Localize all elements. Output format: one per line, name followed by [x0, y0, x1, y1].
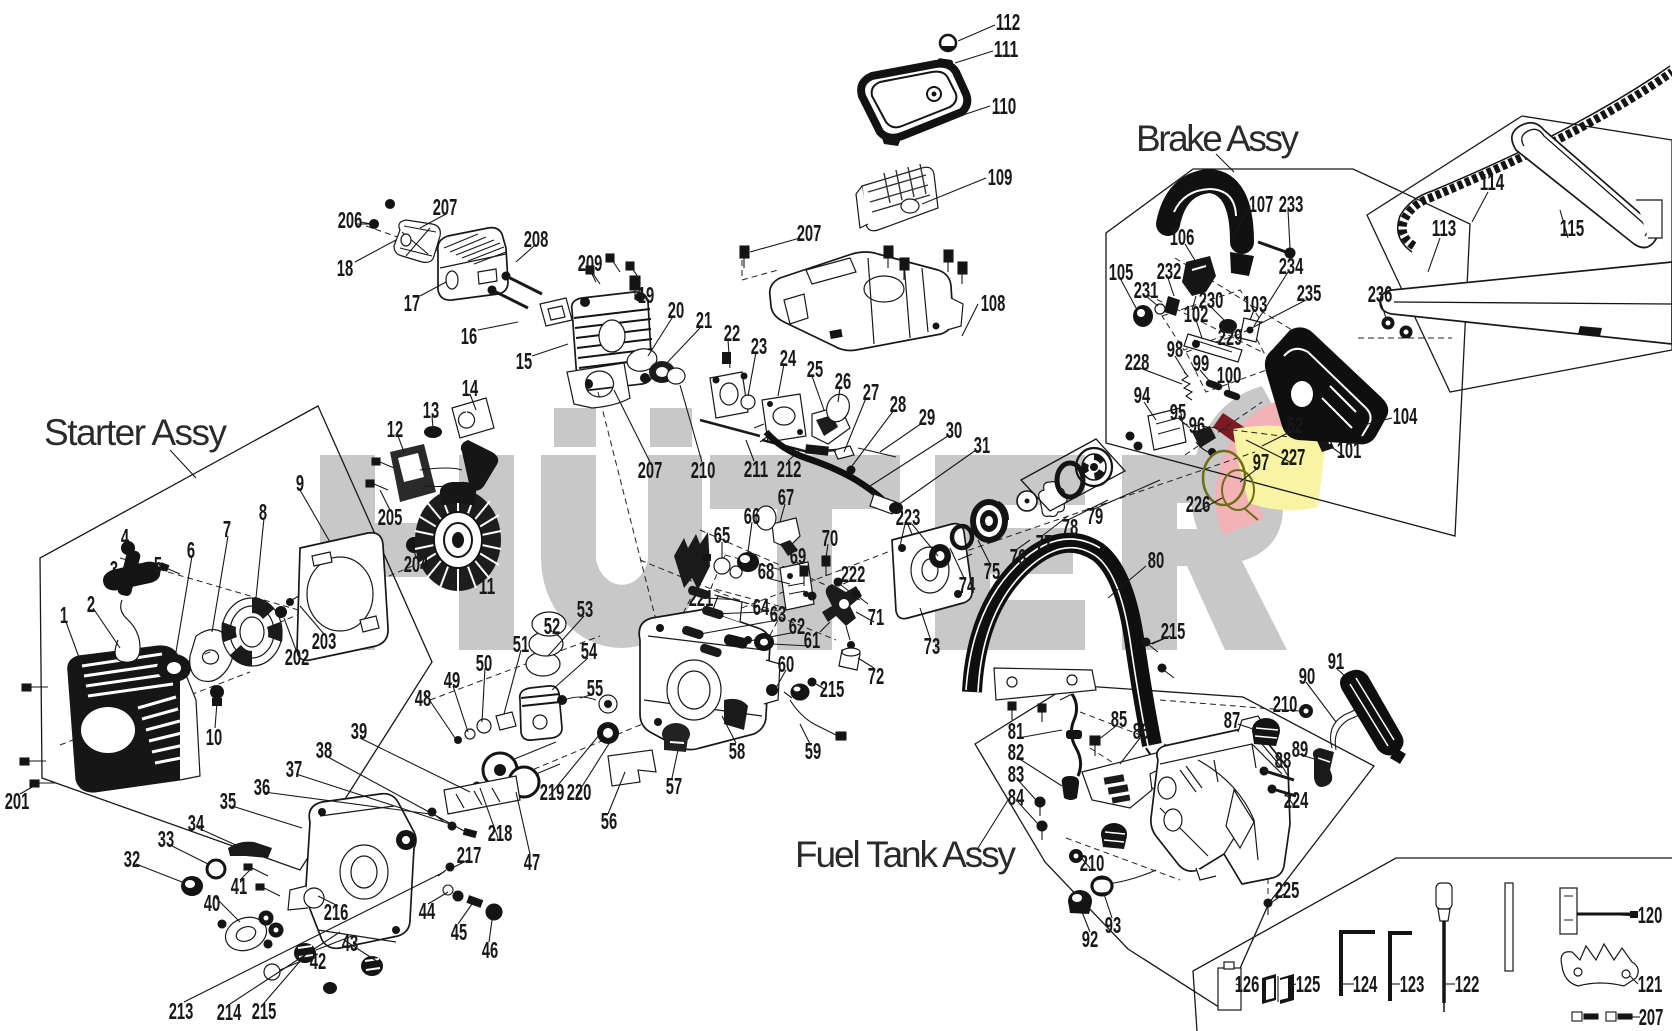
- svg-text:105: 105: [1109, 259, 1134, 285]
- svg-text:80: 80: [1148, 547, 1164, 573]
- svg-text:53: 53: [577, 596, 593, 622]
- svg-text:52: 52: [544, 613, 560, 639]
- svg-text:217: 217: [457, 842, 482, 868]
- svg-text:223: 223: [896, 504, 921, 530]
- svg-text:216: 216: [324, 899, 349, 925]
- svg-text:207: 207: [1639, 1004, 1664, 1030]
- svg-text:106: 106: [1170, 224, 1195, 250]
- svg-text:55: 55: [587, 675, 604, 701]
- svg-text:222: 222: [841, 561, 866, 587]
- svg-text:232: 232: [1157, 258, 1182, 284]
- svg-text:226: 226: [1186, 491, 1211, 517]
- svg-text:Fuel Tank Assy: Fuel Tank Assy: [795, 834, 1017, 875]
- svg-text:5: 5: [154, 552, 162, 578]
- svg-text:62: 62: [789, 613, 805, 639]
- svg-text:38: 38: [316, 737, 333, 763]
- svg-text:65: 65: [714, 522, 731, 548]
- svg-text:235: 235: [1297, 280, 1322, 306]
- svg-text:236: 236: [1368, 281, 1393, 307]
- svg-text:1: 1: [60, 602, 68, 628]
- svg-text:210: 210: [691, 457, 716, 483]
- svg-text:Brake Assy: Brake Assy: [1136, 118, 1300, 159]
- svg-text:102: 102: [1184, 301, 1209, 327]
- svg-text:17: 17: [404, 290, 420, 316]
- svg-text:7: 7: [223, 516, 231, 542]
- svg-text:95: 95: [1170, 399, 1187, 425]
- svg-text:210: 210: [1080, 850, 1105, 876]
- svg-text:234: 234: [1279, 253, 1304, 279]
- svg-text:115: 115: [1560, 215, 1585, 241]
- svg-text:49: 49: [444, 667, 460, 693]
- svg-text:24: 24: [780, 345, 797, 371]
- svg-text:34: 34: [188, 810, 205, 836]
- svg-text:219: 219: [540, 779, 565, 805]
- svg-text:33: 33: [158, 826, 174, 852]
- svg-text:207: 207: [797, 220, 822, 246]
- svg-text:207: 207: [638, 457, 663, 483]
- svg-text:221: 221: [689, 585, 714, 611]
- svg-text:86: 86: [1133, 718, 1149, 744]
- svg-text:71: 71: [868, 604, 885, 630]
- svg-text:208: 208: [524, 226, 549, 252]
- svg-text:68: 68: [758, 558, 775, 584]
- svg-text:97: 97: [1253, 449, 1269, 475]
- svg-text:31: 31: [974, 432, 991, 458]
- svg-text:113: 113: [1432, 215, 1457, 241]
- svg-text:206: 206: [338, 207, 363, 233]
- svg-text:50: 50: [476, 650, 492, 676]
- svg-text:94: 94: [1134, 382, 1151, 408]
- svg-text:57: 57: [666, 773, 682, 799]
- svg-text:69: 69: [790, 543, 806, 569]
- svg-text:70: 70: [822, 525, 838, 551]
- svg-text:16: 16: [461, 323, 477, 349]
- svg-text:104: 104: [1393, 403, 1418, 429]
- svg-text:211: 211: [744, 456, 769, 482]
- svg-text:215: 215: [1161, 618, 1186, 644]
- svg-text:37: 37: [286, 756, 302, 782]
- svg-text:15: 15: [516, 348, 533, 374]
- svg-text:3: 3: [110, 556, 118, 582]
- svg-text:103: 103: [1243, 291, 1268, 317]
- svg-text:59: 59: [805, 738, 821, 764]
- svg-text:27: 27: [863, 379, 879, 405]
- svg-text:10: 10: [206, 724, 222, 750]
- svg-text:Starter Assy: Starter Assy: [44, 412, 228, 453]
- svg-text:91: 91: [1328, 648, 1345, 674]
- svg-text:79: 79: [1087, 503, 1103, 529]
- svg-text:224: 224: [1284, 787, 1309, 813]
- svg-text:28: 28: [890, 391, 907, 417]
- svg-text:121: 121: [1638, 971, 1663, 997]
- svg-text:227: 227: [1281, 444, 1306, 470]
- svg-text:93: 93: [1105, 912, 1121, 938]
- svg-text:29: 29: [919, 404, 935, 430]
- svg-text:32: 32: [124, 846, 140, 872]
- svg-text:107: 107: [1249, 191, 1274, 217]
- svg-text:88: 88: [1275, 747, 1292, 773]
- svg-text:204: 204: [404, 551, 429, 577]
- svg-text:61: 61: [804, 627, 821, 653]
- svg-text:76: 76: [1010, 544, 1026, 570]
- svg-text:89: 89: [1292, 736, 1308, 762]
- svg-text:202: 202: [285, 644, 310, 670]
- svg-text:39: 39: [351, 718, 367, 744]
- svg-text:54: 54: [581, 638, 598, 664]
- svg-text:66: 66: [744, 503, 760, 529]
- svg-text:213: 213: [169, 998, 194, 1024]
- svg-text:201: 201: [5, 788, 30, 814]
- svg-text:203: 203: [312, 628, 337, 654]
- svg-text:6: 6: [187, 537, 195, 563]
- svg-text:48: 48: [415, 685, 432, 711]
- svg-text:78: 78: [1062, 514, 1079, 540]
- svg-text:14: 14: [462, 375, 479, 401]
- svg-text:225: 225: [1275, 877, 1300, 903]
- svg-text:63: 63: [770, 601, 786, 627]
- svg-text:210: 210: [1273, 691, 1298, 717]
- svg-text:205: 205: [378, 504, 403, 530]
- svg-text:112: 112: [996, 9, 1021, 35]
- svg-text:22: 22: [724, 320, 740, 346]
- svg-text:124: 124: [1353, 971, 1378, 997]
- svg-text:19: 19: [638, 282, 654, 308]
- svg-text:215: 215: [820, 676, 845, 702]
- svg-text:26: 26: [835, 368, 851, 394]
- svg-text:25: 25: [807, 356, 824, 382]
- svg-text:233: 233: [1279, 191, 1304, 217]
- svg-text:23: 23: [751, 333, 767, 359]
- svg-text:41: 41: [231, 873, 248, 899]
- svg-text:111: 111: [994, 36, 1019, 62]
- svg-text:125: 125: [1296, 971, 1321, 997]
- svg-text:98: 98: [1167, 336, 1184, 362]
- svg-text:85: 85: [1111, 706, 1128, 732]
- svg-text:72: 72: [868, 663, 884, 689]
- svg-text:35: 35: [220, 788, 237, 814]
- svg-text:44: 44: [419, 898, 436, 924]
- svg-text:47: 47: [524, 849, 540, 875]
- svg-text:229: 229: [1218, 324, 1243, 350]
- svg-text:231: 231: [1134, 277, 1159, 303]
- svg-text:101: 101: [1337, 437, 1362, 463]
- svg-text:90: 90: [1299, 663, 1315, 689]
- svg-text:207: 207: [433, 194, 458, 220]
- svg-text:77: 77: [1036, 530, 1052, 556]
- svg-text:215: 215: [252, 998, 277, 1024]
- svg-text:42: 42: [310, 948, 326, 974]
- svg-text:100: 100: [1217, 362, 1242, 388]
- svg-text:218: 218: [488, 820, 513, 846]
- svg-text:9: 9: [296, 470, 304, 496]
- svg-text:96: 96: [1189, 412, 1205, 438]
- svg-text:62: 62: [1287, 412, 1303, 438]
- svg-text:43: 43: [342, 930, 358, 956]
- svg-text:75: 75: [984, 558, 1001, 584]
- svg-text:67: 67: [778, 484, 794, 510]
- svg-text:108: 108: [981, 290, 1006, 316]
- svg-text:99: 99: [1193, 350, 1209, 376]
- svg-text:56: 56: [601, 808, 617, 834]
- svg-text:74: 74: [959, 572, 976, 598]
- svg-text:4: 4: [121, 524, 129, 550]
- svg-text:87: 87: [1224, 707, 1240, 733]
- svg-text:12: 12: [387, 416, 403, 442]
- svg-text:73: 73: [924, 633, 940, 659]
- svg-text:40: 40: [204, 890, 220, 916]
- svg-text:51: 51: [513, 631, 530, 657]
- svg-text:36: 36: [254, 774, 270, 800]
- svg-text:126: 126: [1235, 971, 1260, 997]
- svg-text:122: 122: [1455, 971, 1480, 997]
- svg-text:58: 58: [729, 738, 746, 764]
- svg-text:228: 228: [1125, 349, 1150, 375]
- svg-text:13: 13: [423, 397, 439, 423]
- svg-text:8: 8: [259, 499, 267, 525]
- svg-text:220: 220: [567, 779, 592, 805]
- svg-text:84: 84: [1008, 784, 1025, 810]
- svg-text:20: 20: [668, 297, 684, 323]
- svg-text:21: 21: [696, 307, 713, 333]
- svg-text:92: 92: [1082, 926, 1098, 952]
- svg-text:46: 46: [482, 937, 498, 963]
- svg-text:64: 64: [753, 594, 770, 620]
- svg-text:214: 214: [217, 999, 242, 1025]
- svg-text:109: 109: [988, 164, 1013, 190]
- svg-text:120: 120: [1638, 902, 1663, 928]
- svg-text:123: 123: [1400, 971, 1425, 997]
- svg-text:11: 11: [479, 573, 496, 599]
- svg-text:209: 209: [578, 250, 603, 276]
- svg-text:110: 110: [992, 93, 1017, 119]
- svg-text:18: 18: [337, 255, 354, 281]
- svg-text:30: 30: [946, 417, 962, 443]
- svg-text:2: 2: [87, 591, 95, 617]
- svg-text:114: 114: [1480, 169, 1505, 195]
- svg-text:212: 212: [777, 456, 802, 482]
- svg-text:45: 45: [451, 919, 468, 945]
- svg-text:60: 60: [778, 651, 794, 677]
